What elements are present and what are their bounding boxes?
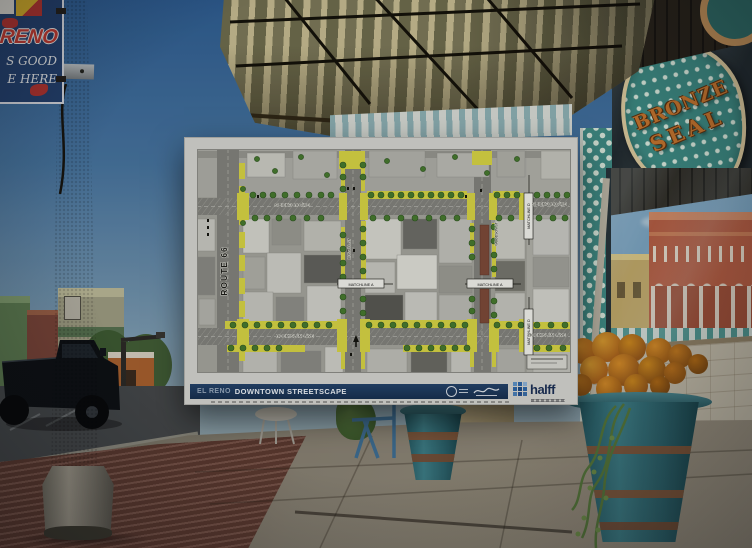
window-mural (606, 168, 752, 346)
street-banner: RENO S GOOD E HERE (0, 0, 64, 104)
streetlight-head (156, 332, 165, 338)
map-note-box (527, 355, 567, 369)
russell-st-label: RUSSELL ST (347, 239, 351, 260)
signature-logo (472, 386, 502, 397)
halff-address-lines (531, 399, 565, 402)
matchline-d-top-label: MATCHLINE D (527, 203, 531, 229)
rock-island-ave-label-right: ROCK ISLAND AVE (528, 333, 566, 338)
rock-island-ave-label-left: ROCK ISLAND AVE (276, 334, 314, 339)
poster-title-bar: EL RENO DOWNTOWN STREETSCAPE (190, 384, 508, 399)
banner-bracket (56, 8, 66, 14)
matchline-a-left-label: MATCHLINE A (348, 283, 374, 287)
weathered-blue-pot (400, 404, 466, 482)
banner-graphic-white (0, 0, 14, 14)
pot-body (402, 414, 464, 480)
pole-base-collar (44, 526, 112, 540)
aerial-map: MATCHLINE A MATCHLINE A MATCHLINE D MATC… (197, 149, 571, 373)
bickford-ave-label-left: S BICKFORD AVE (275, 203, 310, 208)
banner-bracket (56, 76, 66, 82)
map-red-features (480, 225, 489, 323)
pole-base (40, 466, 116, 532)
poster-fine-print (211, 401, 511, 403)
matchline-a-right-label: MATCHLINE A (477, 283, 503, 287)
flower-pot (562, 332, 722, 548)
banner-city-text: RENO (0, 26, 59, 49)
streetscape-poster: MATCHLINE A MATCHLINE A MATCHLINE D MATC… (184, 137, 578, 405)
mum-flower (688, 354, 708, 374)
banner-graphic-swirl (30, 84, 48, 96)
banner-tagline-1: S GOOD (6, 54, 57, 68)
streetscape-map: MATCHLINE A MATCHLINE A MATCHLINE D MATC… (197, 149, 571, 373)
poster-title: DOWNTOWN STREETSCAPE (235, 387, 347, 396)
poster-location: EL RENO (197, 388, 231, 395)
bickford-ave-label-right: S BICKFORD AVE (532, 202, 567, 207)
banner-tagline-2: E HERE (7, 72, 57, 86)
pole-plaque (64, 296, 81, 320)
halff-wordmark: halff (530, 382, 555, 397)
stick-shadow (295, 512, 572, 532)
cafe-table (254, 406, 298, 446)
route-66-label: ROUTE 66 (219, 246, 229, 296)
halff-grid-icon (513, 382, 527, 396)
city-seal-icon (446, 386, 457, 397)
halff-logo: halff (513, 379, 571, 399)
street-scene-photo: BRONZE SEAL (0, 0, 752, 548)
glass-reflection (611, 168, 752, 346)
seal-text-lines (459, 389, 468, 395)
woodson-st-label: WOODSON ST (494, 222, 498, 246)
trailing-vine (554, 398, 646, 548)
banner-graphic-shield (16, 0, 42, 16)
